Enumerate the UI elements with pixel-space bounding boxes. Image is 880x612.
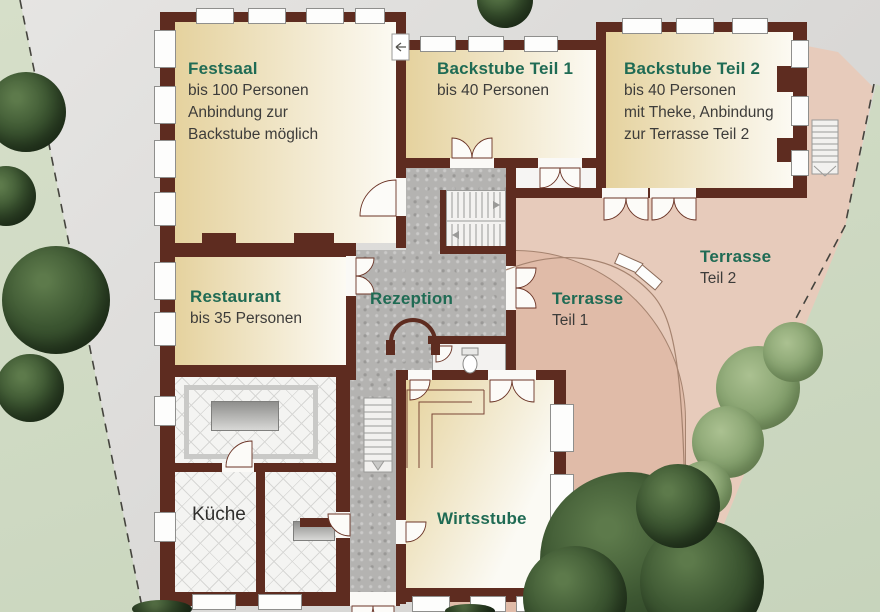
arch-doorway [386,320,440,355]
room-info: bis 40 Personen [437,80,573,102]
stairs-corridor [364,398,392,472]
stairs-external [812,120,838,176]
room-title: Backstube Teil 1 [437,58,573,80]
rezeption-label: Rezeption [370,288,453,310]
terrace-sub: Teil 1 [552,310,623,332]
bar-counter-outline [407,390,484,468]
room-info: Anbindung zur [188,102,318,124]
room-info: Backstube möglich [188,124,318,146]
tree [636,464,720,548]
terrace-title: Terrasse [700,246,771,268]
room-title: Festsaal [188,58,318,80]
wirtsstube-label: Wirtsstube [437,508,527,530]
backstube1-label: Backstube Teil 1 bis 40 Personen [437,58,573,102]
backstube2-label: Backstube Teil 2 bis 40 Personen mit The… [624,58,774,146]
terrasse2-label: Terrasse Teil 2 [700,246,771,290]
terrace-sub: Teil 2 [700,268,771,290]
stairs-central [446,192,506,246]
floor-plan: Festsaal bis 100 Personen Anbindung zur … [0,0,880,612]
room-info: mit Theke, Anbindung [624,102,774,124]
terrace-gate-icon [615,253,662,290]
terrace-title: Terrasse [552,288,623,310]
festsaal-label: Festsaal bis 100 Personen Anbindung zur … [188,58,318,146]
exit-arrow-icon [392,34,409,60]
grass-tuft [445,604,495,612]
room-info: zur Terrasse Teil 2 [624,124,774,146]
grass-tuft [132,600,192,612]
restaurant-label: Restaurant bis 35 Personen [190,286,302,330]
room-info: bis 100 Personen [188,80,318,102]
room-title: Backstube Teil 2 [624,58,774,80]
tree [2,246,110,354]
kueche-label: Küche [192,504,246,526]
room-title: Restaurant [190,286,302,308]
room-info: bis 40 Personen [624,80,774,102]
terrasse1-label: Terrasse Teil 1 [552,288,623,332]
bush [763,322,823,382]
room-info: bis 35 Personen [190,308,302,330]
toilet-icon [462,348,478,373]
